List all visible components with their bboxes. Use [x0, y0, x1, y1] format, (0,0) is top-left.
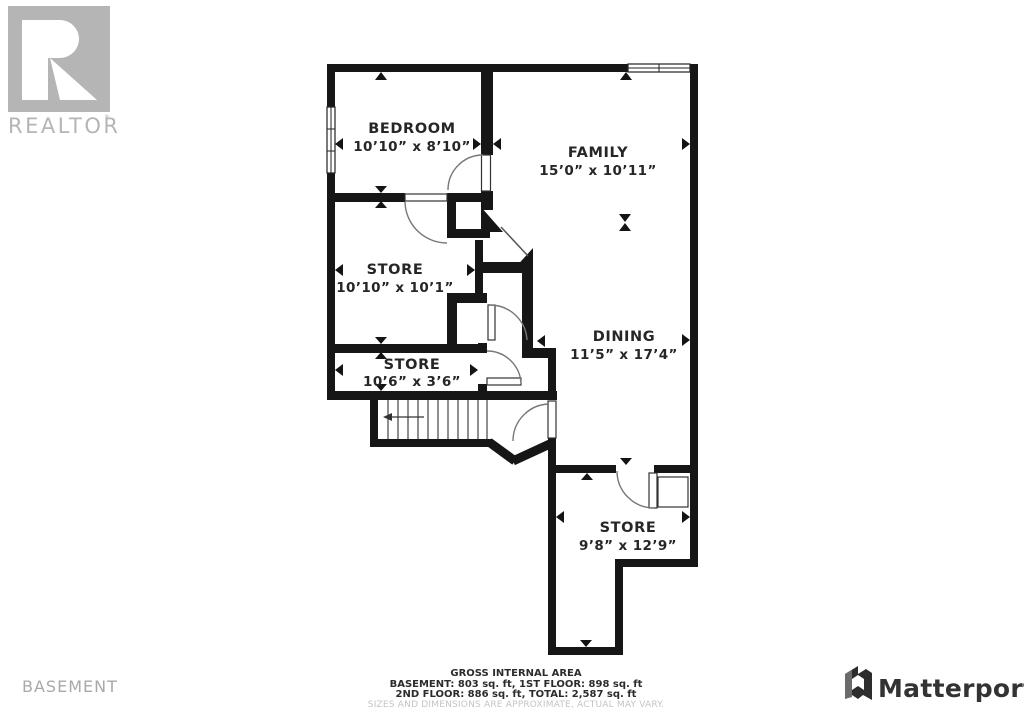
room-name: BEDROOM [368, 121, 455, 137]
matterport-wordmark: Matterport [878, 674, 1024, 703]
door-bedroom-to-store [405, 194, 447, 243]
door-store-closet [488, 305, 527, 340]
door-lower-store [617, 471, 688, 508]
room-dims: 10’10” x 10’1” [336, 280, 453, 296]
gross-internal-area-block: GROSS INTERNAL AREA BASEMENT: 803 sq. ft… [368, 668, 664, 710]
window-family-top [628, 64, 690, 72]
realtor-registered-mark: ® [104, 114, 110, 121]
room-label-store-1: STORE 10’10” x 10’1” [336, 262, 453, 296]
room-label-store-2: STORE 10’6” x 3’6” [363, 357, 461, 390]
room-name: STORE [367, 262, 424, 278]
matterport-m-icon [845, 666, 872, 700]
fixture-box [658, 477, 688, 507]
door-bedroom [448, 155, 491, 191]
room-name: STORE [384, 357, 441, 373]
floorplan-canvas: REALTOR ® [0, 0, 1024, 723]
staircase [383, 400, 487, 439]
realtor-r-stem [22, 20, 48, 100]
room-label-dining: DINING 11’5” x 17’4” [570, 329, 678, 363]
room-dims: 15’0” x 10’11” [539, 163, 656, 179]
room-name: DINING [593, 329, 656, 345]
door-stair-vestibule [513, 401, 556, 441]
window-bedroom-left [327, 107, 335, 173]
matterport-logo: Matterport [845, 666, 1024, 703]
door-corridor [487, 351, 521, 385]
room-dims: 11’5” x 17’4” [570, 347, 678, 363]
footer-disclaimer: SIZES AND DIMENSIONS ARE APPROXIMATE, AC… [368, 700, 664, 710]
footer-title: GROSS INTERNAL AREA [450, 668, 582, 679]
realtor-logo: REALTOR ® [8, 6, 120, 138]
floorplan-page: REALTOR ® [0, 0, 1024, 723]
room-label-family: FAMILY 15’0” x 10’11” [539, 145, 656, 179]
floor-level-label: BASEMENT [22, 677, 118, 696]
room-dims: 10’6” x 3’6” [363, 374, 461, 390]
room-name: FAMILY [568, 145, 628, 161]
door-diagonal-hall [501, 227, 528, 256]
room-name: STORE [600, 520, 657, 536]
room-dims: 10’10” x 8’10” [353, 139, 470, 155]
room-label-bedroom: BEDROOM 10’10” x 8’10” [353, 121, 470, 155]
room-label-store-3: STORE 9’8” x 12’9” [579, 520, 677, 554]
footer-areas-line2: 2ND FLOOR: 886 sq. ft, TOTAL: 2,587 sq. … [396, 689, 637, 700]
room-dims: 9’8” x 12’9” [579, 538, 677, 554]
